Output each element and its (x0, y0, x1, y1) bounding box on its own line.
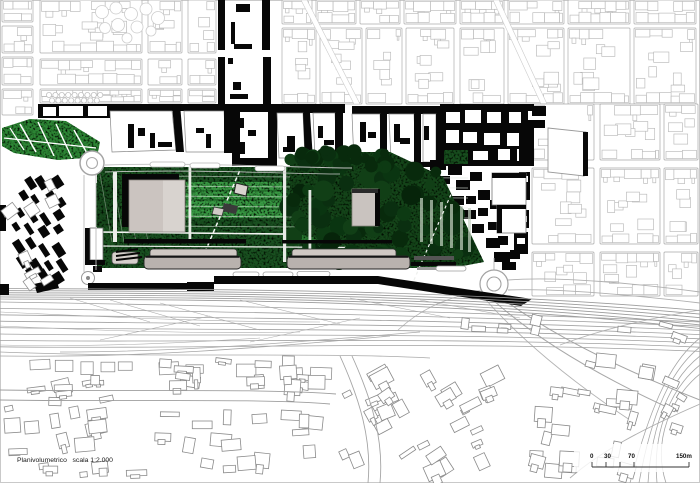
svg-text:70: 70 (628, 453, 635, 460)
svg-text:0: 0 (590, 453, 594, 460)
svg-text:150m: 150m (676, 453, 692, 460)
svg-text:30: 30 (604, 453, 611, 460)
svg-text:Planivolumetrico scala 1:2.0: Planivolumetrico scala 1:2.000 (17, 457, 113, 464)
